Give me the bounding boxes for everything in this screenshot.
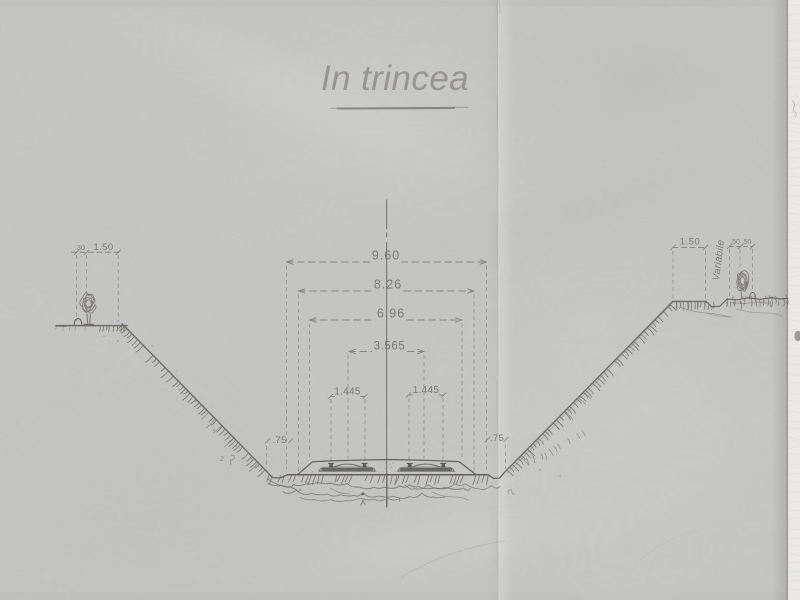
svg-text:1.50: 1.50 <box>93 242 113 253</box>
svg-text:In trincea: In trincea <box>321 59 469 98</box>
svg-text:1.50: 1.50 <box>680 237 701 248</box>
svg-text:.50: .50 <box>742 239 752 246</box>
svg-text:.75: .75 <box>490 433 504 444</box>
svg-text:1.445: 1.445 <box>413 385 440 396</box>
svg-text:.75: .75 <box>272 435 286 446</box>
svg-text:9.60: 9.60 <box>372 249 400 263</box>
svg-text:6.96: 6.96 <box>377 307 405 321</box>
svg-text:8.26: 8.26 <box>374 278 402 292</box>
svg-text:.30: .30 <box>75 245 85 252</box>
svg-text:3.565: 3.565 <box>374 341 406 353</box>
svg-text:.50: .50 <box>730 239 740 246</box>
svg-text:2: 2 <box>220 454 224 463</box>
